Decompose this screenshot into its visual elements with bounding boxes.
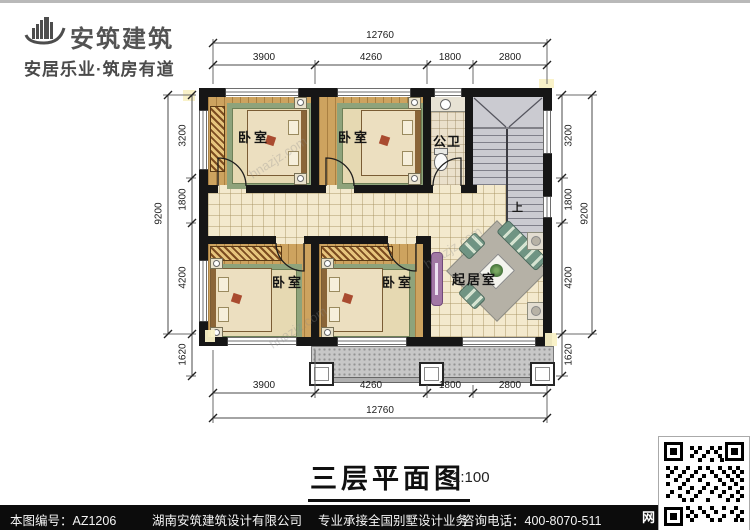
wall-segment xyxy=(354,185,433,193)
dim-top-total: 12760 xyxy=(350,30,410,41)
room-label-bedroom3: 卧室 xyxy=(272,272,304,291)
dim-top-seg3: 1800 xyxy=(428,52,472,63)
window xyxy=(227,337,297,346)
tv-cabinet xyxy=(431,252,443,306)
window xyxy=(434,88,462,97)
qr-finder xyxy=(725,442,744,461)
wardrobe xyxy=(210,106,225,172)
nightstand xyxy=(210,258,223,269)
drawing-number: 本图编号：AZ1206 xyxy=(10,510,116,529)
dim-right-seg2: 1800 xyxy=(564,178,575,222)
dim-bottom-seg1: 3900 xyxy=(242,380,286,391)
footer-service: 专业承接全国别墅设计业务 xyxy=(318,510,468,529)
dim-left-extra: 1620 xyxy=(178,333,189,377)
dim-left-seg2: 1800 xyxy=(178,178,189,222)
nightstand xyxy=(408,97,421,109)
stair-treads-upper xyxy=(473,129,543,185)
dim-bottom-seg4: 2800 xyxy=(488,380,532,391)
dim-top-seg1: 3900 xyxy=(242,52,286,63)
axis-marker xyxy=(545,333,557,346)
drawing-scale: 1:100 xyxy=(452,469,490,486)
footer-phone: 咨询电话：400-8070-511 xyxy=(462,510,601,529)
room-label-living: 起居室 xyxy=(452,269,497,288)
dim-right-total: 9200 xyxy=(580,192,591,236)
company-name: 安筑建筑 xyxy=(70,19,174,54)
wall-segment xyxy=(311,88,319,193)
dim-top-seg4: 2800 xyxy=(488,52,532,63)
dim-bottom-seg2: 4260 xyxy=(349,380,393,391)
window xyxy=(543,110,552,154)
qr-modules xyxy=(690,446,694,450)
window xyxy=(337,88,411,97)
nightstand xyxy=(321,258,334,269)
dim-bottom-seg3: 1800 xyxy=(428,380,472,391)
company-building-icon xyxy=(22,15,68,47)
footer-bar: 本图编号：AZ1206 湖南安筑建筑设计有限公司 专业承接全国别墅设计业务 咨询… xyxy=(0,505,750,530)
wall-segment xyxy=(311,236,319,346)
dim-bottom-total: 12760 xyxy=(350,405,410,416)
balcony-door-window xyxy=(462,337,536,346)
company-tagline: 安居乐业·筑房有道 xyxy=(24,55,175,80)
dim-right-extra: 1620 xyxy=(564,333,575,377)
axis-marker xyxy=(183,90,195,101)
balcony-column xyxy=(309,362,334,386)
footer-web-char: 网 xyxy=(642,507,655,526)
window xyxy=(543,196,552,218)
bed xyxy=(321,268,383,332)
room-label-bathroom: 公卫 xyxy=(433,131,461,150)
wall-segment xyxy=(423,88,431,193)
window xyxy=(225,88,299,97)
room-label-bedroom2: 卧室 xyxy=(338,127,370,146)
qr-code xyxy=(658,436,750,530)
window xyxy=(199,260,208,322)
room-label-bedroom4: 卧室 xyxy=(382,272,414,291)
dim-top-seg2: 4260 xyxy=(349,52,393,63)
axis-marker xyxy=(205,330,215,342)
room-label-bedroom1: 卧室 xyxy=(238,127,270,146)
window xyxy=(337,337,407,346)
wall-segment xyxy=(465,88,473,193)
qr-finder xyxy=(664,507,683,526)
dim-left-seg1: 3200 xyxy=(178,114,189,158)
toilet xyxy=(434,153,448,171)
nightstand xyxy=(294,173,307,185)
dim-right-seg3: 4200 xyxy=(564,256,575,300)
wall-segment xyxy=(199,236,276,244)
sink xyxy=(440,99,451,110)
bed xyxy=(210,268,272,332)
drawing-title: 三层平面图 xyxy=(308,457,470,502)
dim-left-total: 9200 xyxy=(154,192,165,236)
wall-segment xyxy=(423,236,431,346)
nightstand xyxy=(408,173,421,185)
axis-marker xyxy=(539,79,554,88)
window xyxy=(199,110,208,170)
drawing-sheet: 安筑建筑 安居乐业·筑房有道 xyxy=(0,0,750,530)
dim-left-seg3: 4200 xyxy=(178,256,189,300)
dim-right-seg1: 3200 xyxy=(564,114,575,158)
sheet-top-edge xyxy=(0,0,750,3)
nightstand xyxy=(294,97,307,109)
balcony-column xyxy=(530,362,555,386)
stair-up-label: 上 xyxy=(512,199,523,215)
wall-segment xyxy=(199,185,218,193)
footer-company: 湖南安筑建筑设计有限公司 xyxy=(152,510,302,529)
qr-finder xyxy=(664,442,683,461)
